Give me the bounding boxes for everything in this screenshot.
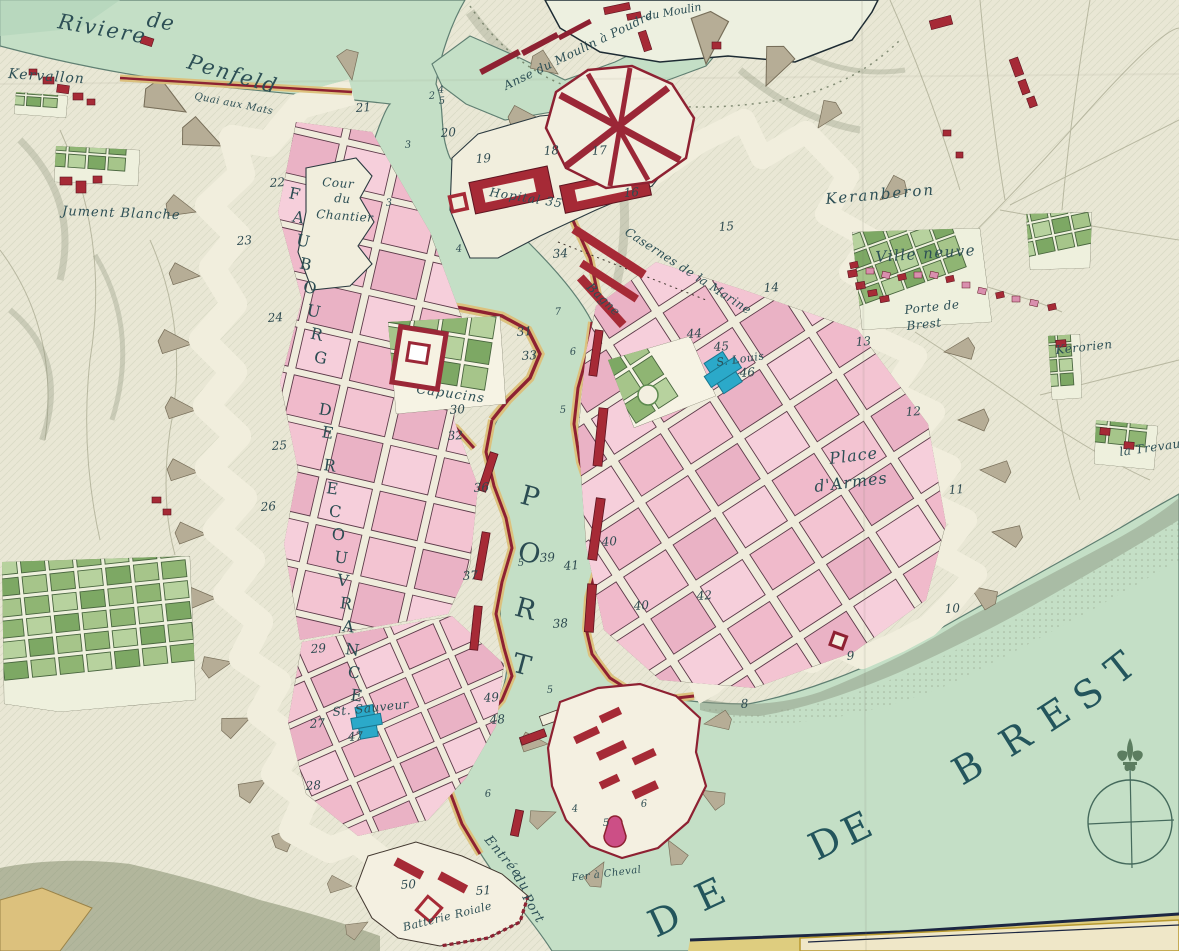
reference-number: 45 [712,339,729,354]
reference-number: 17 [591,143,608,158]
reference-number: 37 [462,568,479,583]
garden-bed [136,584,162,603]
reference-number: 22 [268,175,285,190]
reference-number: 32 [447,428,463,443]
house [60,177,72,185]
place-label: du [334,191,351,206]
ville-neuve-house [962,282,970,288]
garden-bed [59,655,85,674]
reference-number: 49 [482,690,500,705]
reference-number: 33 [521,348,538,363]
reference-number: 46 [738,365,756,380]
ville-neuve-house [995,291,1004,299]
garden-bed [465,339,492,364]
garden-bed [3,661,29,680]
stlouis-fountain [638,385,658,405]
reference-number: 21 [354,100,371,115]
reference-number: 40 [600,534,618,549]
depth-number: 3 [404,140,411,151]
garden-bed [142,646,168,665]
depth-number: 5 [438,96,445,107]
reference-number: 38 [552,616,569,631]
house [87,99,95,105]
house [868,289,878,296]
garden-bed [0,598,22,617]
garden-bed [166,601,192,620]
reference-number: 34 [552,246,568,261]
garden-bed [108,586,134,605]
garden-bed [133,563,159,582]
street-letter: C [347,662,362,683]
reference-number: 12 [905,404,921,419]
reference-number: 51 [475,883,491,898]
garden-bed [22,574,48,593]
reference-number: 9 [846,648,855,663]
ville-neuve-house [881,271,890,279]
reference-number: 19 [475,151,492,166]
garden-bed [1055,233,1075,250]
ville-neuve-house [977,287,986,295]
depth-number: 4 [570,804,578,815]
ville-neuve-house [929,271,938,279]
house [847,269,857,277]
house [712,42,721,49]
reference-number: 26 [259,499,277,514]
garden-bed [43,98,58,108]
garden-bed [138,604,164,623]
reference-number: 13 [855,334,872,349]
garden-bed [114,649,140,668]
garden-bed [68,154,86,168]
reference-number: 14 [763,280,779,295]
historic-map-of-brest: 2120191817161514131211109822232425262927… [0,0,1179,951]
reference-number: 39 [539,550,556,565]
house [163,509,171,515]
house [943,130,951,136]
garden-bed [1036,237,1056,254]
ville-neuve-house [1029,299,1038,307]
garden-bed [56,634,82,653]
garden-bed [31,658,57,677]
reference-number: 27 [308,716,326,731]
reference-number: 36 [473,480,490,495]
coast-redoubt [830,632,847,649]
depth-number: 5 [546,685,553,696]
reference-number: 44 [685,326,702,341]
garden-bed [1071,212,1091,229]
garden-bed [161,560,187,579]
reference-number: 16 [623,185,640,200]
reference-number: 20 [439,125,457,140]
street-letter: C [328,501,343,522]
street-letter: O [331,524,347,545]
reference-number: 50 [400,877,417,892]
garden-bed [78,568,104,587]
reference-number: 28 [304,778,322,793]
depth-number: 2 [427,91,435,102]
reference-number: 42 [695,588,712,603]
house [73,93,83,100]
reference-number: 47 [346,729,364,744]
map-canvas: 2120191817161514131211109822232425262927… [0,0,1179,951]
garden-bed [26,97,41,107]
ville-neuve-house [897,273,906,281]
ville-neuve-house [914,272,922,278]
grand-garden [0,539,196,712]
garden-bed [0,619,24,638]
place-label: Cour [322,175,356,191]
garden-bed [1108,428,1126,445]
ville-neuve-house [945,275,954,283]
garden-bed [168,622,194,641]
depth-number: 4 [454,244,462,255]
depth-number: 5 [559,405,566,416]
street-letter: N [344,639,361,660]
house [880,295,890,302]
reference-number: 10 [944,601,961,616]
garden-bed [24,595,50,614]
house [152,497,161,503]
house [1100,428,1111,436]
garden-bed [80,589,106,608]
street-letter: U [333,547,349,568]
ville-neuve-house [1047,303,1056,311]
garden-bed [112,628,138,647]
reference-number: 30 [449,402,466,417]
reference-number: 25 [270,438,287,453]
garden-bed [1059,358,1073,371]
garden-bed [1,640,27,659]
reference-number: 48 [488,712,506,727]
reference-number: 11 [948,482,964,497]
depth-number: 4 [436,85,444,96]
reference-number: 8 [740,696,749,711]
depth-number: 5 [602,818,609,829]
house [956,152,963,158]
depth-number: 3 [385,198,392,209]
garden-bed [461,365,488,390]
garden-bed [52,592,78,611]
garden-bed [1060,373,1074,386]
reference-number: 31 [516,324,532,339]
garden-bed [84,631,110,650]
reference-number: 29 [309,641,327,656]
garden-bed [86,652,112,671]
garden-bed [1032,220,1052,237]
capucins-court [407,343,430,364]
reference-number: 40 [632,598,650,613]
garden-bed [50,571,76,590]
reference-number: 23 [235,233,253,248]
garden-bed [88,156,106,170]
reference-number: 15 [718,219,734,234]
garden-bed [1052,216,1072,233]
garden-bed [82,610,108,629]
garden-bed [163,581,189,600]
garden-bed [29,637,55,656]
reference-number: 24 [266,310,283,325]
ville-neuve-house [866,268,874,274]
house [93,176,102,183]
garden-bed [170,643,196,662]
garden-bed [26,616,52,635]
garden-bed [106,566,132,585]
place-label: de [145,7,177,35]
house [76,181,86,193]
garden-bed [110,607,136,626]
garden-bed [108,157,126,171]
ville-neuve-house [1012,296,1020,302]
reference-number: 18 [543,143,560,158]
garden-bed [140,625,166,644]
ville-neuve-house [849,261,858,269]
garden-bed [0,577,20,596]
garden-bed [54,613,80,632]
reference-number: 41 [562,558,579,573]
